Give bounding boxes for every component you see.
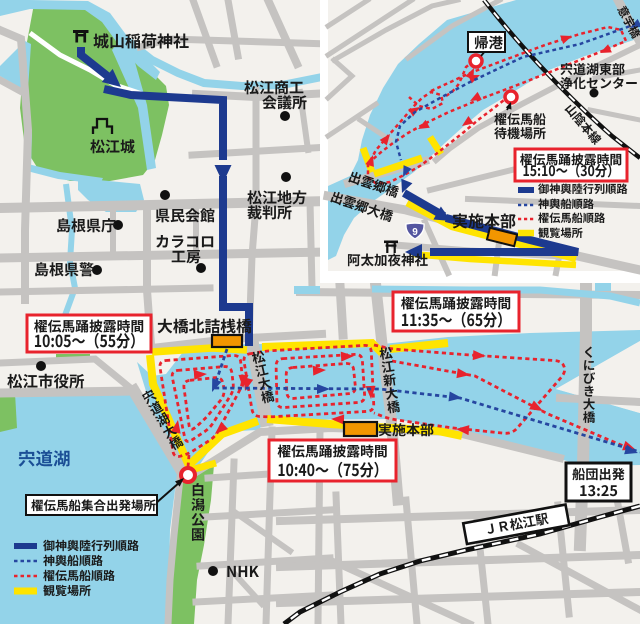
svg-text:9: 9 — [412, 227, 418, 238]
